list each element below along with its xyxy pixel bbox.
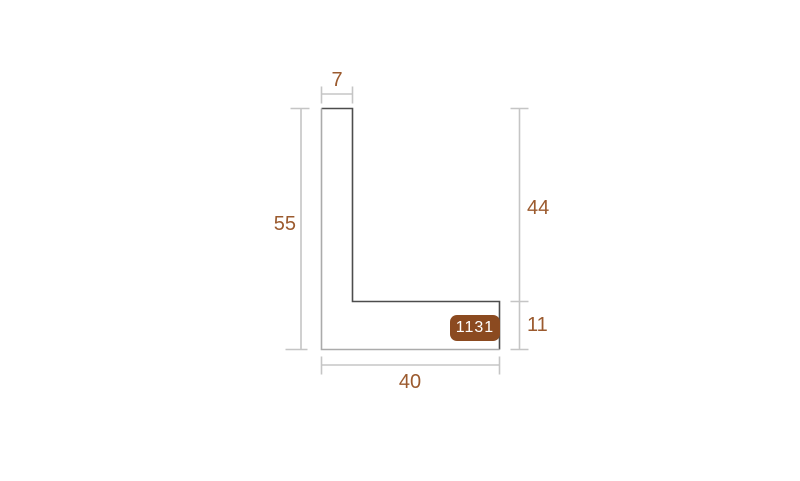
dimension-right-lower-height-label: 11 — [527, 315, 548, 335]
dimension-right-upper-height-label: 44 — [527, 198, 549, 218]
dimension-bottom-width-label: 40 — [385, 372, 435, 392]
profile-drawing-canvas: 7 55 44 11 40 1131 — [0, 0, 800, 481]
dimension-right-lower-height-lines — [511, 302, 529, 350]
dimension-left-height-label: 55 — [254, 214, 296, 234]
profile-outline-light-edges — [322, 109, 500, 350]
profile-id-badge: 1131 — [450, 315, 500, 341]
dimension-top-width-label: 7 — [321, 70, 353, 90]
profile-outline-dark-edges — [322, 109, 500, 350]
profile-drawing — [0, 0, 800, 481]
dimension-right-upper-height-lines — [511, 109, 529, 302]
